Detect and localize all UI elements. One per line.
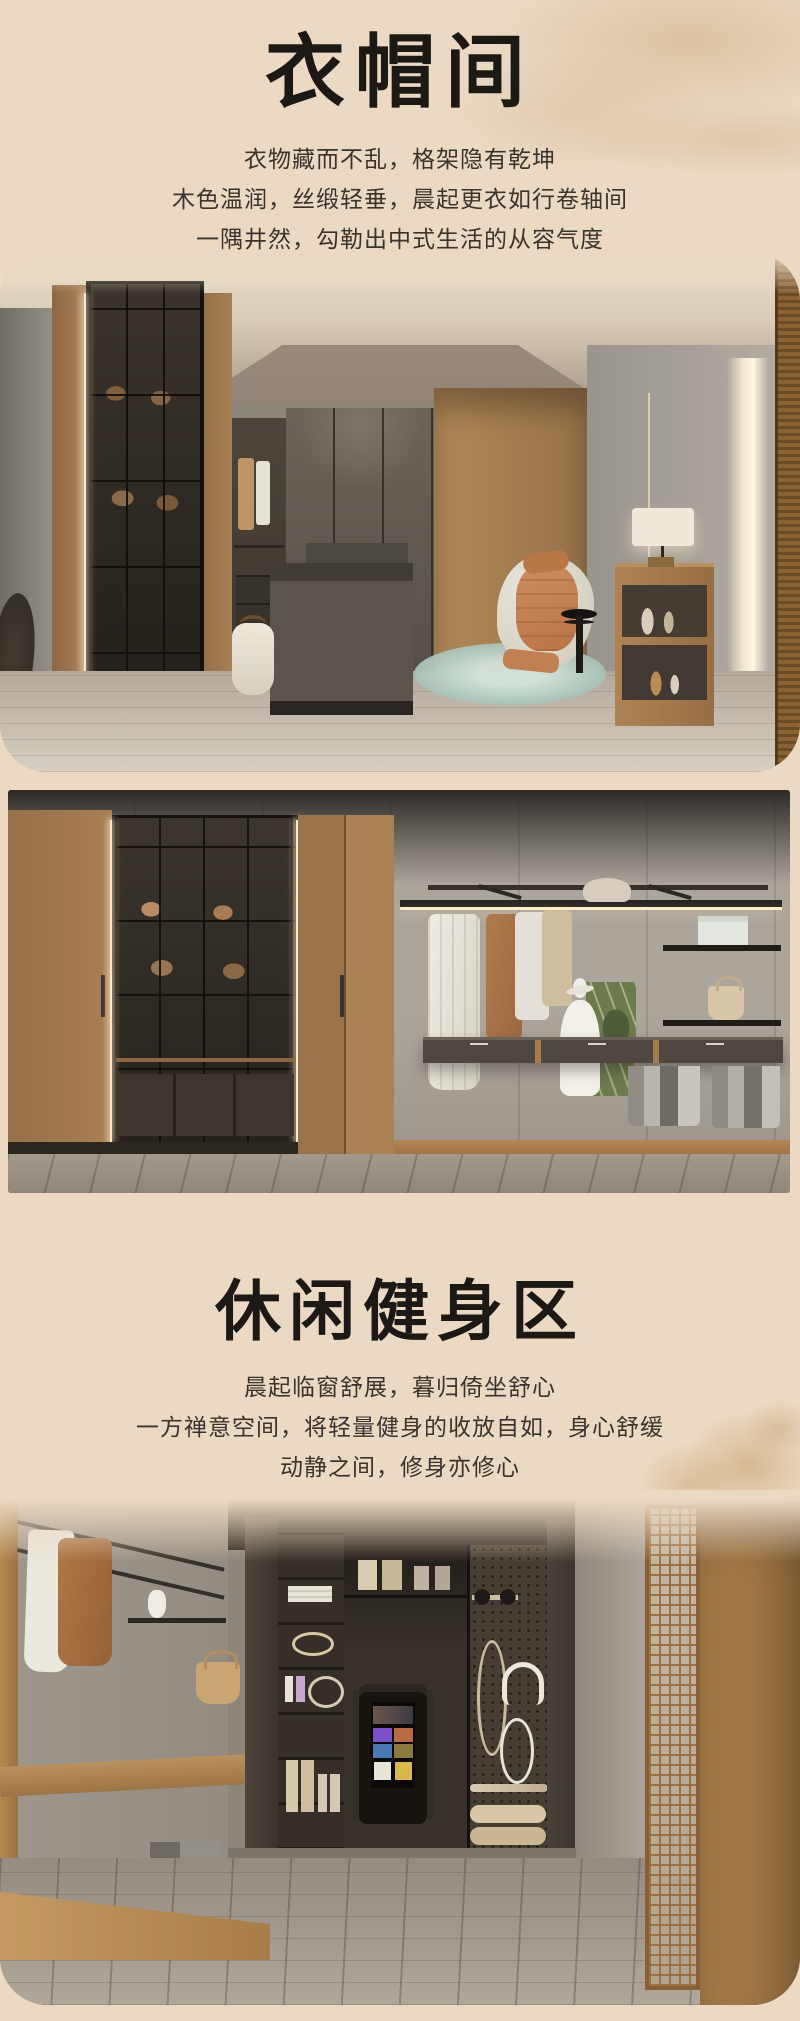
hanging-trousers-left (628, 1066, 700, 1126)
cabinet-drawer-fronts (116, 1074, 294, 1136)
island-cabinet (270, 563, 413, 715)
hat-box (583, 878, 631, 902)
photo-fitness-area (0, 1490, 800, 2005)
niche-hanging-garment-white (256, 461, 270, 525)
pendant-light-cord (648, 393, 650, 583)
water-bottles (285, 1676, 305, 1702)
yoga-mat-roll-1 (470, 1805, 546, 1823)
console-shelf-lower (622, 645, 707, 700)
white-vase (148, 1590, 166, 1618)
table-lamp-base (648, 557, 674, 567)
drawer-handle-2 (588, 1043, 606, 1045)
bronze-lattice-screen (775, 253, 800, 772)
p2-plank-floor (8, 1154, 790, 1193)
basket-handle (204, 1650, 238, 1669)
island-back-cabinet (306, 543, 408, 565)
massage-ball-set (308, 1676, 344, 1708)
yoga-mat-roll-2 (470, 1827, 546, 1845)
wardrobe-led-strip (84, 293, 86, 723)
storage-box-on-shelf (698, 916, 748, 945)
screen-video-tile-1 (373, 1706, 413, 1724)
niche-hanging-garment-tan (238, 458, 254, 530)
roller-pair-on-shelf (358, 1560, 402, 1590)
rope-ring (292, 1632, 334, 1656)
wardrobe-left-door (245, 1518, 278, 1850)
cloakroom-tagline-2: 木色温润，丝缎轻垂，晨起更衣如行卷轴间 (0, 180, 800, 214)
hanging-robe (428, 914, 480, 1090)
section-title-fitness: 休闲健身区 (0, 1258, 800, 1354)
lattice-screen (645, 1505, 700, 1990)
screen-video-tile-3 (394, 1728, 413, 1742)
table-lamp-shade (632, 508, 694, 546)
wood-wardrobe-stile-left (52, 285, 86, 733)
stool-leather-handle (239, 615, 267, 635)
rail-led-bar (400, 907, 782, 910)
wardrobe-right-door (547, 1520, 575, 1850)
p3-wall-shelf (128, 1618, 226, 1623)
wood-sliding-door-left (8, 810, 112, 1162)
screen-card-yellow (395, 1762, 412, 1780)
side-table-stem (576, 615, 583, 673)
drawer-handle-3 (706, 1043, 724, 1045)
wood-wardrobe-door (204, 293, 232, 733)
wood-double-door (298, 815, 394, 1162)
p3-wood-panel-right (700, 1490, 800, 2005)
p3-top-fade (0, 1490, 800, 1562)
fitness-tagline-2: 一方禅意空间，将轻量健身的收放自如，身心舒缓 (0, 1408, 800, 1442)
wall-shelf-lower (663, 1020, 781, 1026)
cabinet-led-strip-left (110, 820, 112, 1142)
fitness-tagline-3: 动静之间，修身亦修心 (0, 1448, 800, 1482)
wall-shelf-upper (663, 945, 781, 951)
towel-stack (288, 1586, 332, 1602)
hanging-trousers-right (712, 1066, 780, 1128)
machine-side-rail-left (353, 1690, 359, 1820)
ab-roller (472, 1582, 518, 1612)
photo-walk-in-closet (0, 253, 800, 772)
cloakroom-tagline-3: 一隅井然，勾勒出中式生活的从容气度 (0, 220, 800, 254)
screen-video-tile-2 (373, 1728, 392, 1742)
double-door-handle (340, 975, 344, 1017)
cabinet-wood-shelf (116, 1058, 294, 1062)
niche-shelf-line (234, 545, 284, 548)
resistance-rope (500, 1718, 534, 1784)
floating-drawer-unit (423, 1037, 783, 1063)
screen-video-tile-4 (373, 1744, 392, 1758)
massage-chair-cushion (516, 565, 578, 651)
console-shelf-upper (622, 585, 707, 637)
wall-bar (470, 1784, 548, 1792)
foam-rollers (286, 1760, 314, 1812)
p1-top-blend (0, 253, 800, 293)
cloakroom-tagline-1: 衣物藏而不乱，格架隐有乾坤 (0, 140, 800, 174)
handbag-on-shelf (708, 986, 744, 1020)
door-handle-groove (101, 975, 105, 1017)
section-title-cloakroom: 衣帽间 (0, 8, 800, 124)
handbag-handle (716, 976, 742, 991)
left-cabinet-plinth (8, 1142, 298, 1154)
drawer-handle-1 (470, 1043, 488, 1045)
promo-page: 衣帽间 衣物藏而不乱，格架隐有乾坤 木色温润，丝缎轻垂，晨起更衣如行卷轴间 一隅… (0, 0, 800, 2021)
niche-shelf-strip (344, 1595, 467, 1598)
dumbbell-pair-on-shelf (414, 1566, 450, 1590)
photo-wardrobe-wall (8, 790, 790, 1193)
screen-card-white (374, 1762, 391, 1780)
fitness-tagline-1: 晨起临窗舒展，暮归倚坐舒心 (0, 1368, 800, 1402)
machine-side-rail-right (427, 1690, 433, 1820)
beige-dumbbells (318, 1774, 340, 1812)
screen-video-tile-5 (394, 1744, 413, 1758)
headphones (502, 1662, 544, 1705)
